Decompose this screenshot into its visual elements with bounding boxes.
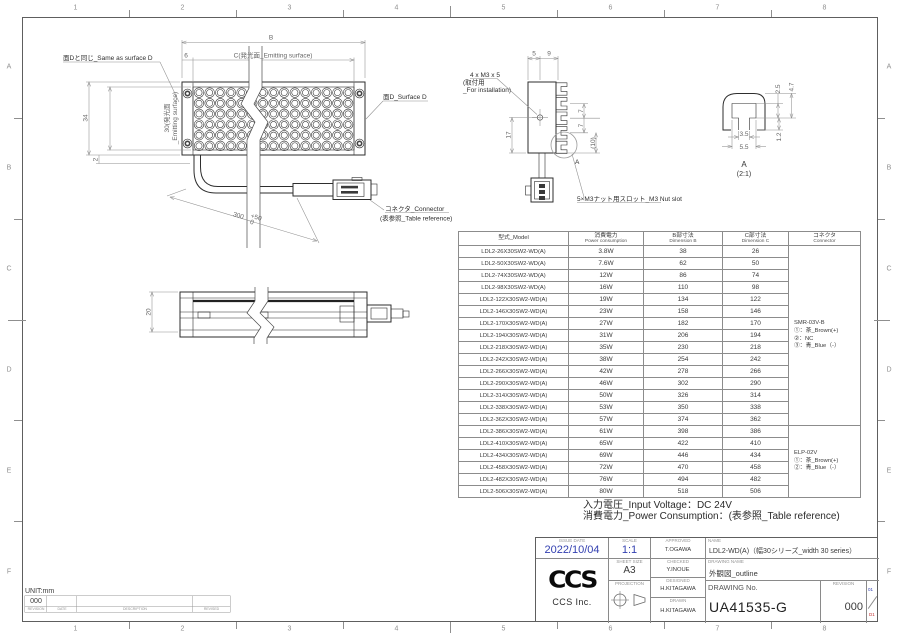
logo-cell: CCS CCS Inc. [536,559,609,623]
sheet-rev-top: 01 [868,587,873,592]
approved-by: T.OGAWA [651,547,705,553]
svg-text:_For installation): _For installation) [462,87,511,94]
detail-mark: A [575,159,580,166]
issue-date: 2022/10/04 [536,544,608,556]
ccs-logo: CCS [536,568,608,592]
designed-cell: DESIGNED H.KITAGAWA [651,578,706,598]
col-model: 型式_Model [459,232,569,246]
drawing-sheet: 1122334455667788AABBCCDDEEFF [0,0,900,636]
col-power: 消費電力Power consumption [569,232,644,246]
cable [194,155,333,196]
col-connector: コネクタConnector [789,232,861,246]
checked-cell: CHECKED Y.INOUE [651,559,706,578]
checked-by: Y.INOUE [651,567,705,573]
revision-number: 000 [821,601,866,613]
profile-view: 5 9 4 x M3 x 5 (取付用 _For installation) 1… [462,51,682,204]
dim-6: 6 [184,53,188,60]
name-cell: NAME LDL2-WD(A)（幅30シリーズ_width 30 series） [706,538,879,559]
dim-7a: 7 [578,109,585,113]
nut-slot-label: 5×M3ナット用スロット_M3 Nut slot [577,195,682,203]
detail-scale: (2:1) [737,171,751,178]
drawing-name: 外観図_outline [706,568,879,579]
side-view: 20 [146,287,410,344]
scale-cell: SCALE 1:1 [609,538,651,559]
power-consumption-note: 消費電力_Power Consumption：(表参照_Table refere… [583,511,840,522]
same-as-surface-d-label: 面Dと同じ_Same as surface D [63,54,153,62]
issue-date-cell: ISSUE DATE 2022/10/04 [536,538,609,559]
dim-5-5: 5.5 [739,144,748,151]
svg-text:300: 300 [232,211,245,221]
led-array [194,88,353,151]
dim-17: 17 [506,131,513,139]
title-block: ISSUE DATE 2022/10/04 CCS CCS Inc. SCALE… [535,537,878,622]
connector-label: コネクタ_Connector [385,204,445,213]
model-spec-table: 型式_Model 消費電力Power consumption B部寸法Dimen… [458,231,861,498]
unit-label: UNIT:mm [25,588,231,595]
model-row: LDL2-26X30SW2-WD(A)3.8W3826SMR-03V-B①：茶_… [459,246,861,258]
third-angle-projection-icon [609,587,649,613]
dim-2-5: 2.5 [775,84,782,93]
dim-34: 34 [83,114,90,122]
dim-b: B [269,35,273,42]
sheet-rev-cell: 01 D1 [867,581,879,623]
dim-c-emitting: C(発光面_Emitting surface) [234,51,313,60]
sheet-size-cell: SHEET SIZE A3 [609,559,651,581]
dim-30-line1: 30(発光面 [162,103,171,132]
approved-cell: APPROVED T.OGAWA [651,538,706,559]
table-header-row: 型式_Model 消費電力Power consumption B部寸法Dimen… [459,232,861,246]
drawn-by: H.KITAGAWA [651,608,705,614]
dim-3-5: 3.5 [739,131,748,138]
connector-ref-label: (表参照_Table reference) [380,214,452,223]
rev-number: 000 [25,596,47,607]
cable-connector [333,178,377,200]
dim-10: (10) [590,137,597,149]
revision-cell: REVISION 000 [821,581,867,623]
surface-d-label: 面D_Surface D [383,93,427,101]
m3-install-label: 4 x M3 x 5 [470,72,500,79]
sheet-rev-slash [868,596,877,609]
detail-a-view: 3.5 5.5 2.5 4.7 1.2 A (2:1) [722,82,796,178]
connector-group-cell: SMR-03V-B①：茶_Brown(+)②：NC③：青_Blue（-） [789,246,861,426]
product-name: LDL2-WD(A)（幅30シリーズ_width 30 series） [706,546,879,556]
connector-group-cell: ELP-02V①：茶_Brown(+)②：青_Blue（-） [789,426,861,498]
dim-20: 20 [146,308,153,316]
drawing-name-cell: DRAWING NAME 外観図_outline [706,559,879,581]
svg-text:(取付用: (取付用 [463,78,485,87]
detail-label: A [741,160,747,169]
revision-history-block: UNIT:mm 000 REVISION DATE DESCRIPTION RE… [25,588,231,614]
col-dim-c: C部寸法Dimension C [723,232,789,246]
designed-by: H.KITAGAWA [651,586,705,592]
dim-2: 2 [93,157,100,161]
scale-value: 1:1 [609,544,650,556]
dim-4-7: 4.7 [789,82,796,91]
dim-1-2: 1.2 [776,132,783,141]
projection-cell: PROJECTION [609,581,651,623]
dim-7b: 7 [578,123,585,127]
company-name: CCS Inc. [536,597,608,607]
drawing-number: UA41535-G [706,599,820,615]
drawing-no-cell: DRAWING No. UA41535-G [706,581,821,623]
dim-9: 9 [547,51,551,58]
profile-connector [526,178,554,202]
input-voltage-note: 入力電圧_Input Voltage：DC 24V [583,500,840,511]
drawn-cell: DRAWN H.KITAGAWA [651,598,706,623]
model-row: LDL2-386X30SW2-WD(A)61W398386ELP-02V①：茶_… [459,426,861,438]
dim-5: 5 [532,51,536,58]
front-view: B C(発光面_Emitting surface) 6 34 30(発光面 _E… [63,35,452,249]
sheet-rev-bottom: D1 [869,612,875,617]
col-dim-b: B部寸法Dimension B [644,232,723,246]
sheet-size: A3 [609,565,650,576]
voltage-notes: 入力電圧_Input Voltage：DC 24V 消費電力_Power Con… [583,500,840,522]
